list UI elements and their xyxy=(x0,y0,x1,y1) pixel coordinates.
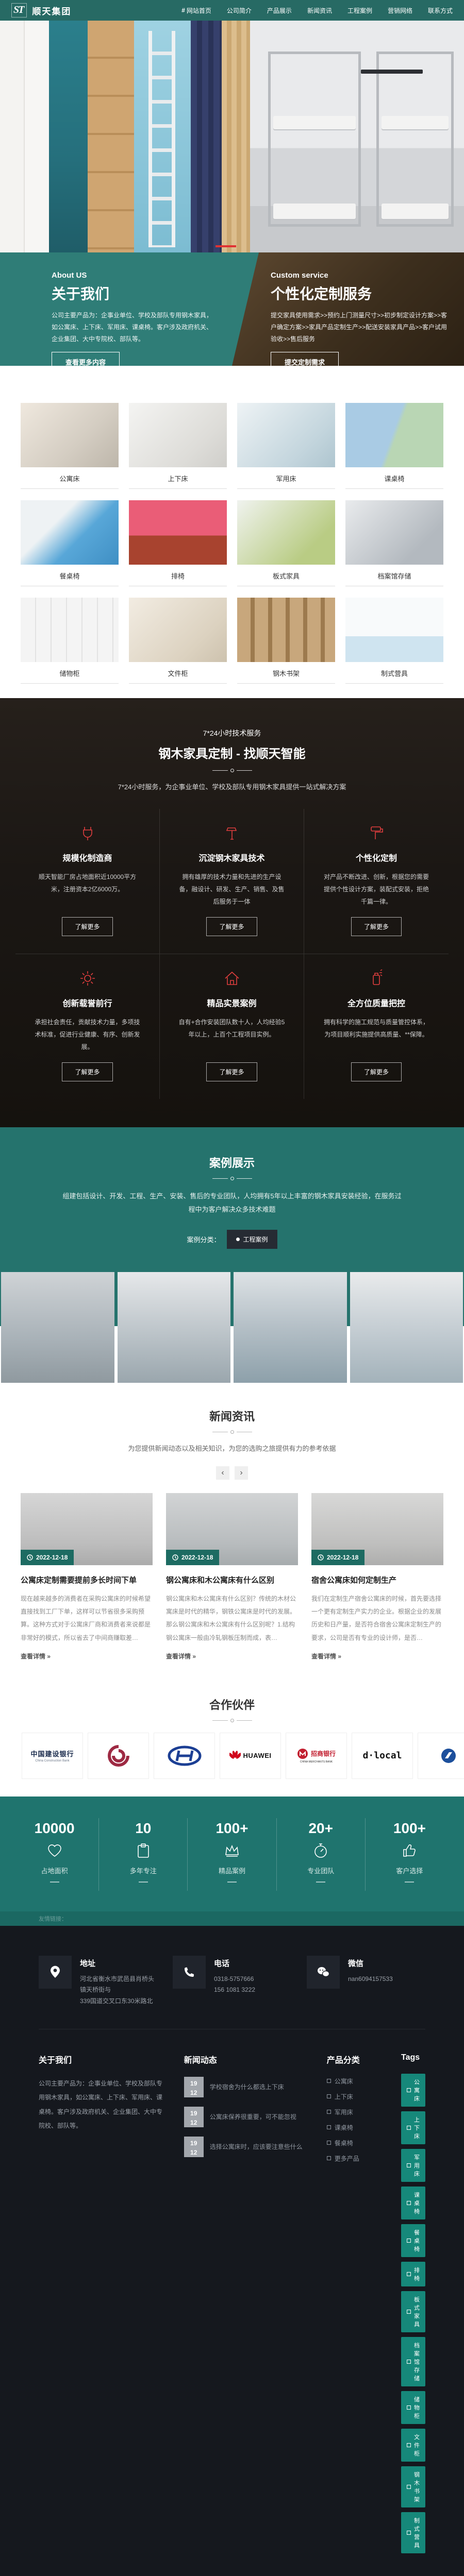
date-badge: 2022-12-18 xyxy=(21,1550,74,1565)
tag-button[interactable]: 板式家具 xyxy=(401,2291,425,2332)
news-carousel-arrows: ‹ › xyxy=(21,1466,443,1480)
product-card-bunk-bed[interactable]: 上下床 xyxy=(129,403,227,489)
news-section: 新闻资讯 为您提供新闻动态以及相关知识，为您的选购之旅提供有力的参考依据 ‹ ›… xyxy=(0,1383,464,1682)
nav-item-network[interactable]: 营销网络 xyxy=(388,6,412,15)
square-icon xyxy=(407,2531,411,2535)
stopwatch-icon xyxy=(280,1842,362,1859)
nav-item-products[interactable]: 产品展示 xyxy=(267,6,292,15)
learn-more-button[interactable]: 了解更多 xyxy=(206,1062,257,1081)
square-icon xyxy=(327,2110,331,2114)
tag-button[interactable]: 上下床 xyxy=(401,2111,425,2144)
section-divider xyxy=(15,769,449,772)
product-image xyxy=(21,598,119,662)
card-divider xyxy=(345,586,443,586)
footer-category-link[interactable]: 餐桌椅 xyxy=(327,2139,380,2147)
footer-news-column: 新闻动态 1912 学校宿舍为什么都选上下床 1912 公寓床保养很重要，可不能… xyxy=(184,2053,306,2553)
house-icon xyxy=(177,968,286,989)
partner-logo-dlocal[interactable]: d·local xyxy=(352,1733,413,1779)
news-card-3[interactable]: 2022-12-18 宿舍公寓床如何定制生产 我们在定制生产宿舍公寓床的时候，首… xyxy=(311,1493,443,1661)
hero-mattress xyxy=(273,116,356,129)
news-subtitle: 为您提供新闻动态以及相关知识，为您的选购之旅提供有力的参考依据 xyxy=(21,1443,443,1453)
clock-icon xyxy=(172,1554,178,1561)
card-divider xyxy=(345,488,443,489)
tech-card-customization: 个性化定制 对产品不断改进、创新，根据您的需要提供个性设计方案，装配式安装，拒绝… xyxy=(304,809,449,954)
card-divider xyxy=(237,586,335,586)
phone-number-1: 0318-5757666 xyxy=(214,1974,255,1985)
square-icon xyxy=(407,2088,411,2092)
card-divider xyxy=(345,683,443,684)
square-icon xyxy=(407,2126,411,2130)
wechat-icon xyxy=(307,1956,340,1989)
footer-category-link[interactable]: 课桌椅 xyxy=(327,2123,380,2132)
company-name: 顺天集团 xyxy=(32,4,71,17)
about-panel: About US 关于我们 公司主要产品为：企事业单位、学校及部队专用钢木家具，… xyxy=(0,252,232,366)
tag-button[interactable]: 制式营具 xyxy=(401,2512,425,2553)
cases-desc: 组建包括设计、开发、工程、生产、安装、售后的专业团队，人均拥有5年以上丰富的钢木… xyxy=(62,1190,402,1216)
footer-news-item[interactable]: 1912 学校宿舍为什么都选上下床 xyxy=(184,2077,306,2097)
square-icon xyxy=(327,2156,331,2160)
learn-more-button[interactable]: 了解更多 xyxy=(62,1062,112,1081)
stat-floor-area: 10000 占地面积 xyxy=(10,1818,99,1891)
product-card-archive-storage[interactable]: 档案馆存储 xyxy=(345,500,443,586)
case-filter-label: 案例分类： xyxy=(187,1234,220,1244)
dot-icon xyxy=(236,1238,240,1241)
tag-button[interactable]: 储物柜 xyxy=(401,2391,425,2424)
site-header: ST 顺天集团 #网站首页 公司简介 产品展示 新闻资讯 工程案例 营销网络 联… xyxy=(0,0,464,21)
hero-lamp xyxy=(361,70,423,74)
news-detail-link[interactable]: 查看详情 » xyxy=(166,1653,196,1660)
case-image-4[interactable] xyxy=(350,1272,463,1383)
hero-bunk-bed xyxy=(268,52,361,227)
contact-wechat: 微信 nan6094157533 xyxy=(307,1956,425,2007)
partner-logo-huawei[interactable]: HUAWEI xyxy=(220,1733,281,1779)
tech-small-title: 7*24小时技术服务 xyxy=(15,728,449,738)
stat-customers: 100+ 客户选择 xyxy=(366,1818,454,1891)
square-icon xyxy=(407,2360,411,2364)
stat-dash xyxy=(316,1882,325,1883)
friend-links-strip: 友情链接： xyxy=(0,1911,464,1926)
section-divider xyxy=(0,1719,464,1722)
cmb-emblem-icon xyxy=(297,1748,308,1759)
partner-logo-row: 中国建设银行 China Construction Bank HUAWEI 招商… xyxy=(0,1733,464,1779)
square-icon xyxy=(407,2485,411,2489)
partner-logo-swirl[interactable] xyxy=(88,1733,149,1779)
prev-arrow-button[interactable]: ‹ xyxy=(216,1466,229,1480)
partner-logo-partial[interactable] xyxy=(418,1733,464,1779)
case-image-strip xyxy=(1,1272,463,1383)
tag-button[interactable]: 钢木书架 xyxy=(401,2466,425,2507)
tag-button[interactable]: 排椅 xyxy=(401,2262,425,2286)
stat-team: 20+ 专业团队 xyxy=(277,1818,366,1891)
product-card-row-chairs[interactable]: 排椅 xyxy=(129,500,227,586)
card-divider xyxy=(21,586,119,586)
custom-service-panel: Custom service 个性化定制服务 提交家具使用需求>>预约上门测量尺… xyxy=(232,252,464,366)
news-card-1[interactable]: 2022-12-18 公寓床定制需要提前多长时间下单 现在越来越多的消费者在采购… xyxy=(21,1493,153,1661)
home-icon: # xyxy=(181,7,185,14)
product-card-dining-set[interactable]: 餐桌椅 xyxy=(21,500,119,586)
footer-category-link[interactable]: 上下床 xyxy=(327,2092,380,2101)
product-image xyxy=(237,500,335,565)
location-pin-icon xyxy=(39,1956,72,1989)
partners-title: 合作伙伴 xyxy=(0,1696,464,1713)
section-divider xyxy=(21,1430,443,1434)
tech-card-grid: 规模化制造商 顺天智能厂房占地面积近10000平方米，注册资本2亿6000万。 … xyxy=(15,809,449,1099)
square-icon xyxy=(407,2201,411,2205)
product-image xyxy=(129,403,227,467)
footer-news-item[interactable]: 1912 选择公寓床时，应该要注意些什么 xyxy=(184,2137,306,2157)
sun-icon xyxy=(33,968,142,989)
square-icon xyxy=(407,2405,411,2410)
product-image xyxy=(21,403,119,467)
friend-links-label: 友情链接： xyxy=(39,1916,67,1922)
news-title: 新闻资讯 xyxy=(21,1408,443,1424)
nav-item-home[interactable]: #网站首页 xyxy=(181,6,211,15)
cases-title: 案例展示 xyxy=(15,1154,449,1171)
main-nav: #网站首页 公司简介 产品展示 新闻资讯 工程案例 营销网络 联系方式 xyxy=(181,6,453,15)
tech-card-technology: 沉淀钢木家具技术 拥有雄厚的技术力量和先进的生产设备，融设计、研发、生产、销售、… xyxy=(160,809,304,954)
card-divider xyxy=(129,683,227,684)
card-divider xyxy=(21,683,119,684)
card-divider xyxy=(237,488,335,489)
partner-logo-cmb[interactable]: 招商银行 CHINA MERCHANTS BANK xyxy=(286,1733,347,1779)
hero-mattress xyxy=(382,116,449,129)
footer-category-link[interactable]: 更多产品 xyxy=(327,2154,380,2163)
tag-button[interactable]: 公寓床 xyxy=(401,2074,425,2107)
hero-mattress xyxy=(382,204,449,219)
news-detail-link[interactable]: 查看详情 » xyxy=(311,1653,341,1660)
news-image: 2022-12-18 xyxy=(21,1493,153,1565)
clock-icon xyxy=(318,1554,324,1561)
tech-card-showcase: 精品实景案例 自有+合作安装团队数十人，人均经验5年以上，上百个工程项目实例。 … xyxy=(160,954,304,1099)
custom-eyebrow: Custom service xyxy=(271,271,449,280)
wechat-id: nan6094157533 xyxy=(348,1974,393,1985)
phone-icon xyxy=(173,1956,206,1989)
news-card-2[interactable]: 2022-12-18 钢公寓床和木公寓床有什么区别 钢公寓床和木公寓床有什么区别… xyxy=(166,1493,298,1661)
tag-button[interactable]: 餐桌椅 xyxy=(401,2224,425,2257)
footer-category-link[interactable]: 军用床 xyxy=(327,2108,380,2116)
case-image-2[interactable] xyxy=(118,1272,231,1383)
product-card-file-cabinet[interactable]: 文件柜 xyxy=(129,598,227,684)
square-icon xyxy=(407,2239,411,2243)
case-image-1[interactable] xyxy=(1,1272,114,1383)
square-icon xyxy=(407,2310,411,2314)
crown-icon xyxy=(191,1842,273,1859)
custom-desc: 提交家具使用需求>>预约上门测量尺寸>>初步制定设计方案>>客户确定方案>>家具… xyxy=(271,310,449,345)
product-image xyxy=(237,598,335,662)
square-icon xyxy=(327,2141,331,2145)
about-title: 关于我们 xyxy=(52,283,217,303)
date-block: 1912 xyxy=(184,2107,204,2127)
date-block: 1912 xyxy=(184,2137,204,2157)
square-icon xyxy=(327,2094,331,2098)
footer-columns: 关于我们 公司主要产品为：企事业单位、学校及部队专用钢木家具，如公寓床、上下床、… xyxy=(39,2053,425,2553)
partners-section: 合作伙伴 中国建设银行 China Construction Bank HUAW… xyxy=(0,1682,464,1797)
tech-services-section: 7*24小时技术服务 钢木家具定制 - 找顺天智能 7*24小时服务，为企事业单… xyxy=(0,698,464,1127)
product-grid: 公寓床 上下床 军用床 课桌椅 餐桌椅 排椅 板式家具 档案馆存储 储物柜 文件… xyxy=(0,366,464,698)
tech-card-manufacturer: 规模化制造商 顺天智能厂房占地面积近10000平方米，注册资本2亿6000万。 … xyxy=(15,809,160,954)
tech-subtitle: 7*24小时服务，为企事业单位、学校及部队专用钢木家具提供一站式解决方案 xyxy=(15,782,449,791)
section-divider xyxy=(15,1177,449,1180)
stat-years: 10 多年专注 xyxy=(99,1818,188,1891)
carousel-active-indicator[interactable] xyxy=(216,245,236,247)
case-filter: 案例分类： 工程案例 xyxy=(15,1230,449,1249)
contact-row: 地址 河北省衡水市武邑县肖桥头镇天桥街与 339国道交叉口东30米路北 电话 0… xyxy=(39,1956,425,2007)
stat-cases: 100+ 精品案例 xyxy=(188,1818,276,1891)
hero-mattress xyxy=(273,204,356,219)
swirl-logo-icon xyxy=(105,1742,132,1769)
huawei-petals-icon xyxy=(229,1751,241,1761)
card-divider xyxy=(129,488,227,489)
hero-teal-wall xyxy=(49,21,88,252)
about-more-button[interactable]: 查看更多内容 xyxy=(52,352,120,372)
stats-bar: 10000 占地面积 10 多年专注 100+ 精品案例 20+ 专业团队 10… xyxy=(0,1797,464,1911)
product-card-apartment-bed[interactable]: 公寓床 xyxy=(21,403,119,489)
hammer-icon xyxy=(177,822,286,844)
contact-phone: 电话 0318-5757666 156 1081 3222 xyxy=(173,1956,291,2007)
hero-bunk-bed xyxy=(376,52,454,227)
clock-icon xyxy=(27,1554,33,1561)
footer-divider xyxy=(39,2029,425,2029)
about-eyebrow: About US xyxy=(52,271,217,280)
learn-more-button[interactable]: 了解更多 xyxy=(206,917,257,936)
hero-curtain-tan xyxy=(222,21,250,252)
product-image xyxy=(129,598,227,662)
nav-item-company[interactable]: 公司简介 xyxy=(227,6,252,15)
contact-address: 地址 河北省衡水市武邑县肖桥头镇天桥街与 339国道交叉口东30米路北 xyxy=(39,1956,157,2007)
spray-can-icon xyxy=(322,968,431,989)
about-desc: 公司主要产品为：企事业单位、学校及部队专用钢木家具，如公寓床、上下床、军用床、课… xyxy=(52,310,217,345)
card-divider xyxy=(237,683,335,684)
brand-logo[interactable]: ST 顺天集团 xyxy=(11,3,71,18)
tech-card-innovation: 创新载誉前行 承担社会责任，贡献技术力量，多项技术标准，促进行业健康、有序、创新… xyxy=(15,954,160,1099)
square-icon xyxy=(327,2125,331,2129)
stat-dash xyxy=(50,1882,59,1883)
custom-submit-button[interactable]: 提交定制需求 xyxy=(271,352,339,366)
partner-logo-ccb[interactable]: 中国建设银行 China Construction Bank xyxy=(22,1733,83,1779)
case-filter-button-engineering[interactable]: 工程案例 xyxy=(227,1230,277,1249)
thumbs-up-icon xyxy=(369,1842,451,1859)
plug-icon xyxy=(33,822,142,844)
hero-ladder xyxy=(148,31,175,247)
product-card-military-bed[interactable]: 军用床 xyxy=(237,403,335,489)
product-card-panel-furniture[interactable]: 板式家具 xyxy=(237,500,335,586)
next-arrow-button[interactable]: › xyxy=(235,1466,248,1480)
product-image xyxy=(129,500,227,565)
news-detail-link[interactable]: 查看详情 » xyxy=(21,1653,51,1660)
product-image xyxy=(345,500,443,565)
square-icon xyxy=(327,2079,331,2083)
footer-category-link[interactable]: 公寓床 xyxy=(327,2077,380,2086)
phone-number-2: 156 1081 3222 xyxy=(214,1985,255,1996)
product-card-steel-bookshelf[interactable]: 钢木书架 xyxy=(237,598,335,684)
footer-news-item[interactable]: 1912 公寓床保养很重要，可不能忽视 xyxy=(184,2107,306,2127)
paint-roller-icon xyxy=(322,822,431,844)
tech-title: 钢木家具定制 - 找顺天智能 xyxy=(15,743,449,761)
custom-title: 个性化定制服务 xyxy=(271,283,449,303)
tech-card-quality: 全方位质量把控 拥有科学的施工规范与质量管控体系，为项目顺利实施提供高质量、**… xyxy=(304,954,449,1099)
nav-item-cases[interactable]: 工程案例 xyxy=(347,6,372,15)
product-card-school-desk[interactable]: 课桌椅 xyxy=(345,403,443,489)
partial-blue-logo-icon xyxy=(440,1747,457,1765)
heart-icon xyxy=(13,1842,95,1859)
product-card-standard-gear[interactable]: 制式营具 xyxy=(345,598,443,684)
news-image: 2022-12-18 xyxy=(311,1493,443,1565)
hero-bookshelf-image xyxy=(88,21,134,252)
news-image: 2022-12-18 xyxy=(166,1493,298,1565)
tag-cloud: 公寓床 上下床 军用床 课桌椅 餐桌椅 排椅 板式家具 档案馆存储 储物柜 文件… xyxy=(401,2074,425,2553)
learn-more-button[interactable]: 了解更多 xyxy=(62,917,112,936)
square-icon xyxy=(407,2443,411,2447)
date-block: 1912 xyxy=(184,2077,204,2097)
site-footer: 地址 河北省衡水市武邑县肖桥头镇天桥街与 339国道交叉口东30米路北 电话 0… xyxy=(0,1926,464,2576)
product-card-locker[interactable]: 储物柜 xyxy=(21,598,119,684)
product-image xyxy=(21,500,119,565)
tag-button[interactable]: 文件柜 xyxy=(401,2429,425,2462)
tag-button[interactable]: 档案馆存储 xyxy=(401,2337,425,2386)
tag-button[interactable]: 军用床 xyxy=(401,2149,425,2182)
logo-monogram: ST xyxy=(11,3,27,18)
hero-curtain-navy xyxy=(191,21,222,252)
square-icon xyxy=(407,2272,411,2276)
nav-item-news[interactable]: 新闻资讯 xyxy=(307,6,332,15)
product-image xyxy=(237,403,335,467)
about-band: About US 关于我们 公司主要产品为：企事业单位、学校及部队专用钢木家具，… xyxy=(0,252,464,366)
hyundai-logo-icon xyxy=(168,1745,202,1766)
clipboard-icon xyxy=(102,1842,184,1859)
nav-item-contact[interactable]: 联系方式 xyxy=(428,6,453,15)
card-divider xyxy=(21,488,119,489)
stat-dash xyxy=(405,1882,414,1883)
footer-tags-column: Tags 公寓床 上下床 军用床 课桌椅 餐桌椅 排椅 板式家具 档案馆存储 储… xyxy=(401,2053,425,2553)
square-icon xyxy=(407,2163,411,2167)
product-image xyxy=(345,403,443,467)
stat-dash xyxy=(227,1882,237,1883)
news-card-grid: 2022-12-18 公寓床定制需要提前多长时间下单 现在越来越多的消费者在采购… xyxy=(21,1493,443,1661)
tag-button[interactable]: 课桌椅 xyxy=(401,2187,425,2219)
case-image-3[interactable] xyxy=(234,1272,347,1383)
hero-carousel xyxy=(0,21,464,252)
date-badge: 2022-12-18 xyxy=(311,1550,364,1565)
learn-more-button[interactable]: 了解更多 xyxy=(351,1062,402,1081)
partner-logo-hyundai[interactable] xyxy=(154,1733,215,1779)
hero-wardrobe-image xyxy=(0,21,49,252)
date-badge: 2022-12-18 xyxy=(166,1550,219,1565)
card-divider xyxy=(129,586,227,586)
footer-categories-column: 产品分类 公寓床 上下床 军用床 课桌椅 餐桌椅 更多产品 xyxy=(327,2053,380,2553)
footer-about-column: 关于我们 公司主要产品为：企事业单位、学校及部队专用钢木家具，如公寓床、上下床、… xyxy=(39,2053,163,2553)
product-image xyxy=(345,598,443,662)
stat-dash xyxy=(139,1882,148,1883)
learn-more-button[interactable]: 了解更多 xyxy=(351,917,402,936)
